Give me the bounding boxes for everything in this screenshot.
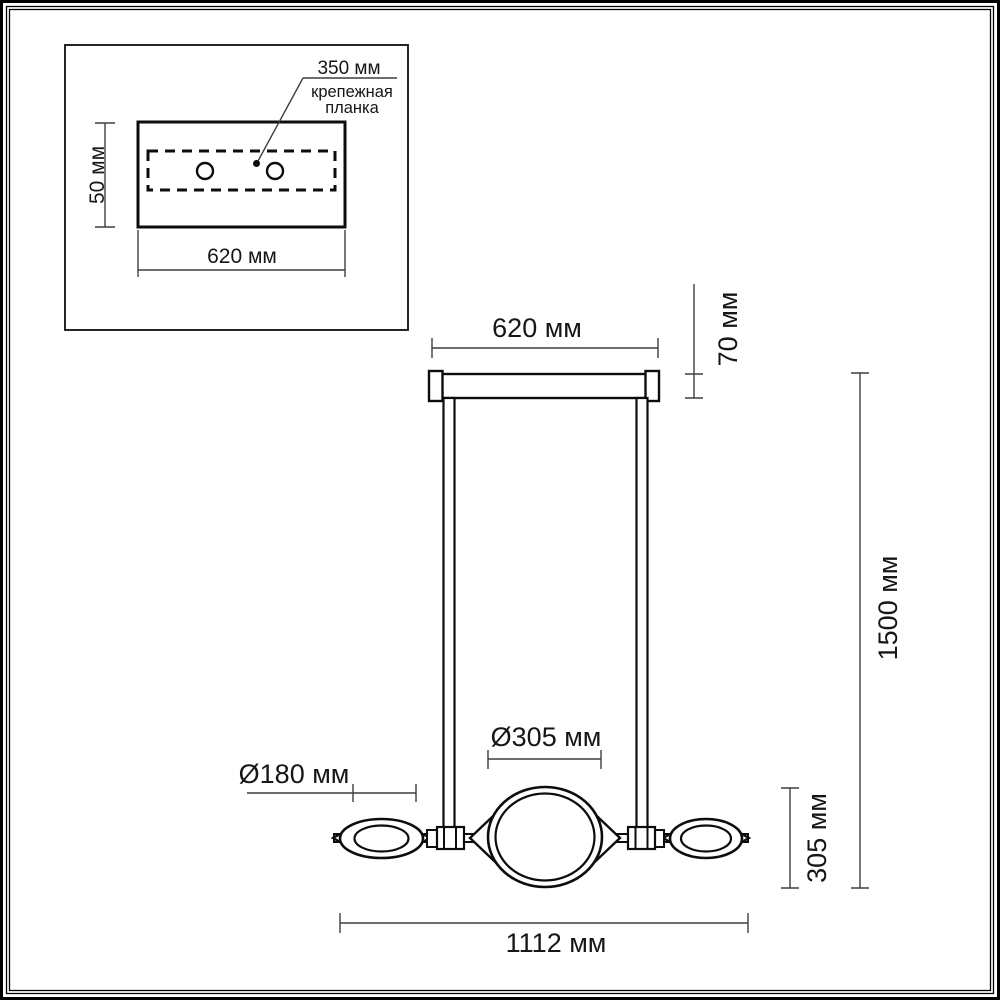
right-oval-shade — [663, 819, 749, 858]
inset-canopy-height-label: 50 мм — [86, 146, 109, 204]
canopy-depth-dimension: 70 мм — [685, 284, 743, 398]
left-shade-inner — [355, 826, 409, 852]
right-shade-inner — [681, 826, 731, 852]
overall-width-dimension: 1112 мм — [340, 913, 748, 958]
side-shade-diameter-label: Ø180 мм — [239, 759, 350, 789]
canopy-width-dimension: 620 мм — [432, 313, 658, 358]
left-oval-shade — [333, 819, 430, 858]
suspension-rod-left — [444, 398, 455, 848]
suspension-rod-right — [637, 398, 648, 848]
connector-body — [437, 827, 464, 849]
overall-height-label: 1500 мм — [873, 556, 903, 661]
connector-block-right — [628, 827, 655, 849]
canopy-cap-left — [429, 371, 443, 401]
side-shade-diameter-dimension: Ø180 мм — [239, 759, 416, 802]
shade-height-dimension: 305 мм — [781, 788, 832, 888]
lamp-technical-drawing: 350 мм крепежная планка 50 мм 620 мм 620… — [0, 0, 1000, 1000]
overall-height-dimension: 1500 мм — [851, 373, 903, 888]
canopy-cap-right — [646, 371, 660, 401]
canopy-depth-label: 70 мм — [713, 292, 743, 367]
inset-canopy-rect — [138, 122, 345, 227]
inset-canopy-width-label: 620 мм — [207, 245, 277, 268]
inset-panel: 350 мм крепежная планка 50 мм 620 мм — [65, 45, 408, 330]
drawing-canvas: 350 мм крепежная планка 50 мм 620 мм 620… — [0, 0, 1000, 1000]
leader-dot — [253, 160, 260, 167]
lamp-front-view — [333, 371, 749, 887]
connector-block-left — [437, 827, 464, 849]
inset-plate-label-line2: планка — [325, 99, 379, 117]
center-shade-diameter-dimension: Ø305 мм — [488, 722, 601, 769]
center-shade-outer — [488, 787, 602, 887]
canopy-width-label: 620 мм — [492, 313, 582, 343]
canopy-bar — [432, 374, 658, 398]
connector-body — [628, 827, 655, 849]
shade-height-label: 305 мм — [802, 793, 832, 883]
overall-width-label: 1112 мм — [506, 928, 607, 958]
inset-plate-width-label: 350 мм — [317, 58, 380, 79]
center-shade-diameter-label: Ø305 мм — [491, 722, 602, 752]
